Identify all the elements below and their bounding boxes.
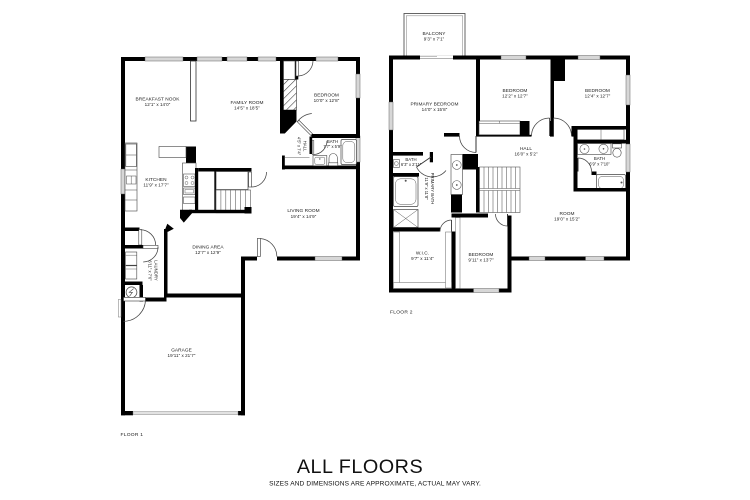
svg-text:4’5” x 7’4”: 4’5” x 7’4”	[296, 137, 301, 156]
svg-text:19’0” x 15’2”: 19’0” x 15’2”	[554, 217, 580, 222]
svg-text:PRIMARY BATH: PRIMARY BATH	[430, 173, 435, 205]
svg-text:19’4” x 14’9”: 19’4” x 14’9”	[291, 214, 317, 219]
svg-text:HALL: HALL	[302, 141, 307, 152]
svg-text:12’7” x 12’9”: 12’7” x 12’9”	[195, 250, 221, 255]
svg-text:9’3” x 7’1”: 9’3” x 7’1”	[424, 37, 445, 42]
svg-text:10’0” x 12’8”: 10’0” x 12’8”	[314, 98, 340, 103]
svg-text:6’3” x 2’11”: 6’3” x 2’11”	[401, 162, 422, 167]
svg-text:11’9” x 17’7”: 11’9” x 17’7”	[143, 183, 169, 188]
svg-text:9’7” x 11’4”: 9’7” x 11’4”	[411, 256, 434, 261]
svg-text:14’5” x 18’5”: 14’5” x 18’5”	[234, 105, 260, 110]
svg-text:6’11” x 7’6”: 6’11” x 7’6”	[148, 260, 153, 281]
svg-text:12’1” x 14’0”: 12’1” x 14’0”	[145, 102, 171, 107]
svg-text:LAUNDRY: LAUNDRY	[154, 260, 159, 281]
svg-text:19’11” x 21’7”: 19’11” x 21’7”	[168, 353, 196, 358]
svg-text:14’0” x 15’8”: 14’0” x 15’8”	[422, 107, 448, 112]
svg-text:12’4” x 12’7”: 12’4” x 12’7”	[585, 94, 611, 99]
svg-text:12’2” x 12’7”: 12’2” x 12’7”	[502, 94, 528, 99]
svg-text:16’0” x 5’2”: 16’0” x 5’2”	[514, 151, 538, 156]
svg-text:FLOOR 1: FLOOR 1	[121, 432, 144, 438]
svg-text:ALL FLOORS: ALL FLOORS	[297, 456, 423, 478]
svg-text:SIZES AND DIMENSIONS ARE APPRO: SIZES AND DIMENSIONS ARE APPROXIMATE, AC…	[269, 481, 481, 488]
svg-text:11’9” x 11’8”: 11’9” x 11’8”	[424, 177, 429, 200]
svg-text:BATH: BATH	[594, 156, 605, 161]
svg-text:7’7” x 5’9”: 7’7” x 5’9”	[323, 144, 342, 149]
svg-text:BATH: BATH	[405, 157, 416, 162]
svg-text:9’11” x 13’7”: 9’11” x 13’7”	[468, 257, 494, 262]
svg-text:FLOOR 2: FLOOR 2	[390, 310, 413, 316]
svg-text:6’9” x 7’10”: 6’9” x 7’10”	[589, 161, 610, 166]
